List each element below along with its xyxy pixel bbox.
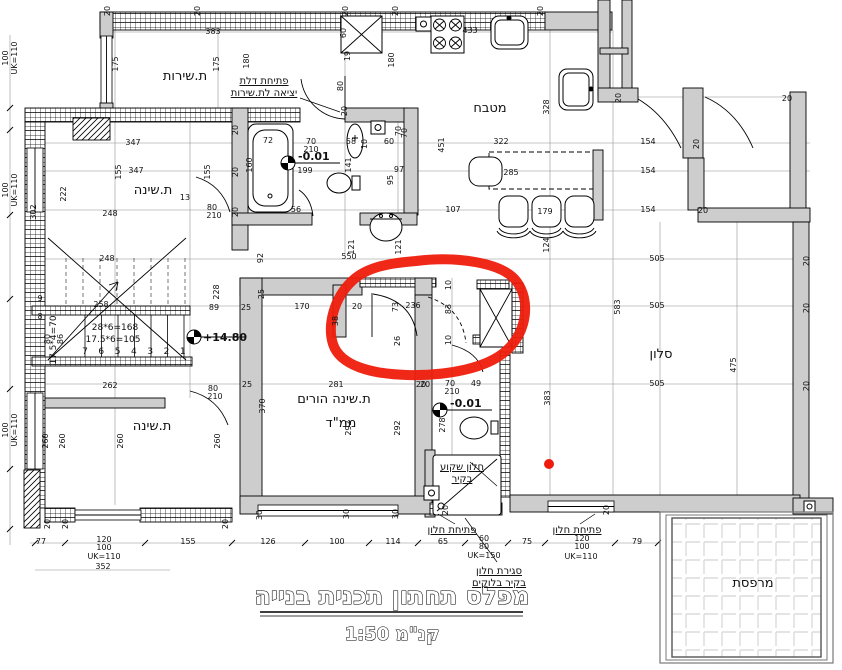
dimension-label: UK=110 — [10, 41, 19, 74]
stair-formula: 28*6=168 — [92, 323, 139, 333]
dimension-label: 383 — [543, 390, 552, 405]
dimension-label: 285 — [503, 168, 518, 177]
dimension-label: 13 — [180, 193, 190, 202]
dimension-label: 20 — [352, 302, 362, 311]
dimension-label: 583 — [613, 299, 622, 314]
fixtures-layer — [248, 16, 815, 516]
dimension-label: 97 — [394, 165, 404, 174]
dimension-label: 155 — [114, 164, 123, 179]
room-label-balcony: מרפסת — [732, 576, 773, 591]
dimension-label: 352 — [95, 562, 110, 571]
dimension-label: 20 — [61, 519, 70, 529]
dimension-label: 210 — [206, 211, 221, 220]
dimension-label: 121 — [394, 239, 403, 254]
dimension-label: 451 — [437, 137, 446, 152]
kitchen-sink — [559, 69, 594, 110]
dimension-label: 65 — [438, 537, 448, 546]
dimension-label: 228 — [212, 284, 221, 299]
kitchen-island — [469, 150, 603, 238]
dimension-label: 20 — [536, 6, 545, 16]
dimension-label: 20 — [231, 125, 240, 135]
dimension-label: 20 — [614, 93, 623, 103]
window-note-left: פתיחת חלון — [427, 525, 476, 536]
dimension-label: 100 — [574, 542, 589, 551]
dimension-label: UK=110 — [564, 552, 597, 561]
dimension-label: 20 — [802, 381, 811, 391]
dimension-label: 155 — [203, 164, 212, 179]
dimension-label: 100 — [1, 50, 10, 65]
dimension-label: UK=150 — [467, 551, 500, 560]
dimension-label: 20 — [103, 6, 112, 16]
dimension-label: 114 — [385, 537, 400, 546]
dimension-label: UK=110 — [87, 552, 120, 561]
recessed-window-note: בקיר — [452, 474, 473, 485]
dimension-label: 154 — [640, 205, 655, 214]
dimension-label: 260 — [116, 433, 125, 448]
dimension-label: 505 — [649, 379, 664, 388]
dimension-label: 347 — [125, 138, 140, 147]
room-label-bedroom-top: ת.שינה — [134, 183, 173, 198]
stair-step-number: 5 — [115, 347, 121, 357]
dimension-label: 160 — [245, 157, 254, 172]
dimension-label: 210 — [207, 392, 222, 401]
dimension-label: 20 — [221, 519, 230, 529]
dimension-label: 30 — [342, 509, 351, 519]
dimension-label: 328 — [542, 99, 551, 114]
window-closure-note: סגירת חלון — [476, 566, 522, 577]
bar-chair — [497, 196, 530, 238]
dimension-label: 210 — [444, 387, 459, 396]
dimension-label: 20 — [698, 206, 708, 215]
dimension-label: 260 — [41, 433, 50, 448]
dimension-label: 347 — [128, 166, 143, 175]
stair-step-number: 6 — [98, 347, 104, 357]
dimension-label: 25 — [242, 380, 252, 389]
dimension-label: 180 — [242, 53, 251, 68]
dimension-label: 38 — [331, 316, 340, 326]
door-note-service: יציאה לת.שירות — [231, 88, 298, 99]
dimension-label: 278 — [438, 417, 447, 432]
stair-step-number: 1 — [180, 347, 186, 357]
dimension-label: 20 — [391, 6, 400, 16]
dimension-label: 25 — [241, 303, 251, 312]
dimension-label: 70 — [400, 128, 409, 138]
dimension-label: 100 — [329, 537, 344, 546]
dimension-label: 20 — [420, 380, 430, 389]
dimension-label: 30 — [391, 509, 400, 519]
dimension-label: 170 — [294, 302, 309, 311]
floor-plan-canvas: מפלס תחתון תכנית בנייה קנ"מ 1:50 2020383… — [0, 0, 842, 670]
red-dot-annotation — [544, 459, 554, 469]
dimension-label: 222 — [59, 186, 68, 201]
dimension-label: 383 — [205, 27, 220, 36]
dimension-label: 89 — [209, 303, 219, 312]
service-box — [424, 486, 439, 500]
dimension-label: 248 — [102, 209, 117, 218]
plan-scale: קנ"מ 1:50 — [345, 624, 440, 645]
dimension-label: 20 — [231, 207, 240, 217]
recessed-window-note: חלון שקוע — [440, 462, 484, 473]
dimension-label: 199 — [297, 166, 312, 175]
dimension-label: 26 — [393, 336, 402, 346]
door-arc — [299, 190, 313, 216]
dimension-label: 10 — [444, 280, 453, 290]
dimension-label: 49 — [471, 379, 481, 388]
dimension-label: 60 — [339, 28, 348, 38]
dimension-label: 126 — [260, 537, 275, 546]
level-value: +14.80 — [203, 331, 247, 344]
stair-step-number: 4 — [131, 347, 137, 357]
dimension-label: 155 — [180, 537, 195, 546]
dimension-label: 72 — [263, 136, 273, 145]
dimension-label: 10 — [360, 139, 369, 149]
level-value: -0.01 — [450, 397, 482, 410]
stair-formula: 17.5*6=105 — [86, 335, 141, 345]
dimension-label: 60 — [384, 137, 394, 146]
dimension-label: 505 — [649, 254, 664, 263]
dimension-label: 8 — [37, 312, 42, 321]
stair-step-number: 2 — [164, 347, 170, 357]
dimension-label: 179 — [537, 207, 552, 216]
dimension-label: 20 — [692, 139, 701, 149]
dimension-label: 322 — [493, 137, 508, 146]
level-value: -0.01 — [298, 150, 330, 163]
dimension-label: 25 — [257, 289, 266, 299]
door-note-service: פתיחת דלת — [239, 76, 288, 87]
dimension-label: 505 — [649, 301, 664, 310]
dimension-label: 80 — [336, 81, 345, 91]
dimension-label: 73 — [391, 302, 400, 312]
stair-formula: 17.5*4=70 — [49, 315, 59, 365]
dimension-label: 175 — [111, 56, 120, 71]
dimension-label: UK=110 — [10, 413, 19, 446]
dimension-label: 281 — [328, 380, 343, 389]
dimension-label: 20 — [441, 505, 450, 515]
dimension-label: 121 — [347, 239, 356, 254]
dimension-label: 10 — [444, 335, 453, 345]
dimension-label: 475 — [729, 357, 738, 372]
dimension-label: 236 — [405, 301, 420, 310]
room-label-bedroom-bottom: ת.שינה — [133, 419, 172, 434]
room-label-kitchen: מטבח — [473, 101, 506, 116]
dimension-label: 260 — [213, 433, 222, 448]
dimension-label: 141 — [344, 157, 353, 172]
dimension-label: 180 — [387, 52, 396, 67]
dimension-label: 19 — [343, 51, 352, 61]
dimension-label: 260 — [58, 433, 67, 448]
dimension-label: 92 — [256, 253, 265, 263]
dimension-label: 248 — [99, 254, 114, 263]
dimension-label: 154 — [640, 166, 655, 175]
toilet — [460, 417, 498, 439]
dimension-label: 83 — [444, 304, 453, 314]
dimension-label: 30 — [255, 510, 264, 520]
dimension-label: 433 — [462, 26, 477, 35]
dimension-label: 77 — [36, 537, 46, 546]
dimension-label: 75 — [522, 537, 532, 546]
dimension-label: UK=110 — [10, 173, 19, 206]
shaft-x — [480, 289, 512, 347]
dimension-label: 302 — [29, 204, 38, 219]
service-box — [416, 17, 431, 31]
balcony-column — [804, 501, 815, 512]
room-label-mamad: ממ"ד — [326, 416, 357, 431]
window-note-right: פתיחת חלון — [552, 525, 601, 536]
dimension-label: 100 — [96, 543, 111, 552]
title-block: מפלס תחתון תכנית בנייה קנ"מ 1:50 — [254, 582, 529, 645]
dimension-label: 58 — [346, 137, 356, 146]
dimension-label: 124 — [542, 237, 551, 252]
dimension-label: 20 — [231, 167, 240, 177]
dimension-label: 100 — [1, 182, 10, 197]
stove — [431, 16, 464, 53]
door-arc — [705, 97, 753, 148]
bar-chair — [563, 196, 596, 238]
dimension-label: 262 — [102, 381, 117, 390]
pedestal-sink — [370, 213, 402, 241]
room-label-parents-bedroom: ת.שינה הורים — [297, 392, 371, 407]
room-label-living-room: סלון — [650, 347, 673, 362]
dimension-label: 56 — [291, 205, 301, 214]
dimension-label: 100 — [1, 422, 10, 437]
dimension-label: 20 — [602, 505, 611, 515]
dimension-label: 20 — [782, 94, 792, 103]
stair-step-number: 3 — [147, 347, 153, 357]
kitchen-sink — [491, 16, 528, 50]
dimension-label: 107 — [445, 205, 460, 214]
dimension-label: 20 — [340, 106, 349, 116]
dimension-label: 80 — [479, 542, 489, 551]
dimension-label: 20 — [193, 6, 202, 16]
window-closure-note: בקיר בלוקים — [472, 578, 526, 589]
dimension-label: 20 — [341, 6, 350, 16]
dimension-label: 20 — [802, 256, 811, 266]
service-box — [371, 121, 385, 134]
dimension-label: 292 — [393, 420, 402, 435]
toilet — [327, 173, 360, 193]
dimension-label: 154 — [640, 137, 655, 146]
dimension-label: 20 — [43, 519, 52, 529]
room-label-service-room: ת.שירות — [163, 69, 207, 84]
dimension-label: 20 — [802, 303, 811, 313]
dimension-label: 370 — [258, 398, 267, 413]
dimension-label: 79 — [632, 537, 642, 546]
dimension-label: 175 — [212, 56, 221, 71]
dimension-label: 95 — [386, 175, 395, 185]
dimension-label: 9 — [37, 294, 42, 303]
dimension-label: 258 — [93, 300, 108, 309]
bar-chair — [530, 196, 563, 238]
stair-step-number: 7 — [82, 347, 88, 357]
floor-plan-page: מפלס תחתון תכנית בנייה קנ"מ 1:50 2020383… — [0, 0, 842, 670]
